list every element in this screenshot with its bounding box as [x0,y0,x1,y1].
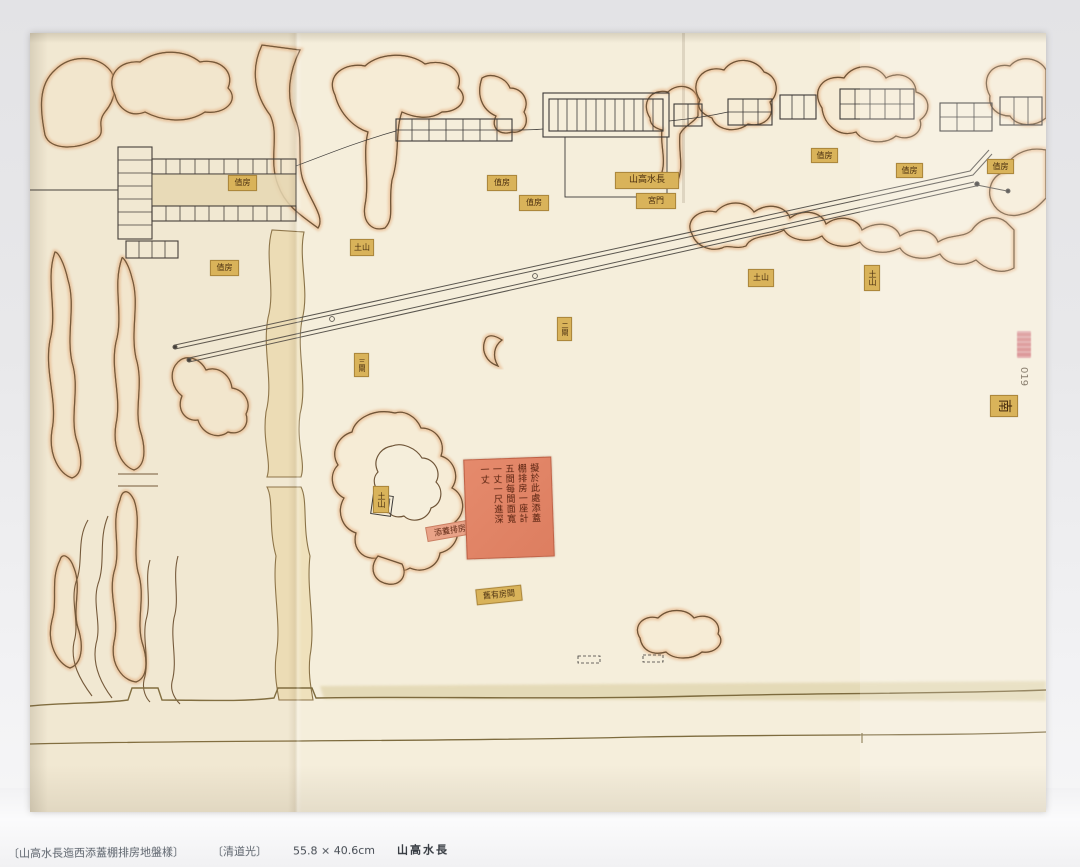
map-label: 值房 [210,260,239,276]
map-label: 值房 [987,159,1014,174]
map-label: 宮門 [636,193,676,209]
map-label: 值房 [811,148,838,163]
map-label: 二閘 [557,317,572,341]
note-slip-column: 擬於此處添蓋 [528,463,541,551]
caption-title: 〔山高水長迤西添蓋棚排房地盤樣〕 [8,844,184,862]
red-seal [1017,331,1031,358]
note-slip-column: 棚排房一座計 [515,463,528,551]
map-label: 土山 [350,239,374,256]
red-note-slip: 擬於此處添蓋棚排房一座計五間每間面寬一丈一尺進深一丈 [463,456,554,559]
map-label: 值房 [487,175,517,191]
caption-dimensions: 55.8 × 40.6cm [293,844,375,858]
map-label: 019 [1016,363,1030,391]
photographed-book-page: 值房值房土山值房值房山高水長宮門值房值房值房土山土山三閘二閘土山添蓋排房舊有房間… [0,0,1080,867]
map-label: 值房 [228,175,257,191]
note-slip-column: 一丈一尺進深 [490,464,503,552]
map-label: 土山 [864,265,880,291]
map-label: 土山 [748,269,774,287]
map-label: 值房 [896,163,923,178]
caption-era: 〔清道光〕 [212,843,267,859]
map-label: 山高水長 [615,172,679,189]
map-label: 值房 [519,195,549,211]
map-labels-layer: 值房值房土山值房值房山高水長宮門值房值房值房土山土山三閘二閘土山添蓋排房舊有房間… [30,33,1046,812]
note-slip-column: 一丈 [478,465,491,553]
map-label: 舊有房間 [475,585,522,606]
map-label: 南 [990,395,1018,417]
map-label: 土山 [373,486,389,513]
caption-site-name: 山高水長 [397,841,449,857]
map-label: 三閘 [354,353,369,377]
map-plate: 值房值房土山值房值房山高水長宮門值房值房值房土山土山三閘二閘土山添蓋排房舊有房間… [30,33,1046,812]
note-slip-column: 五間每間面寬 [503,464,516,552]
